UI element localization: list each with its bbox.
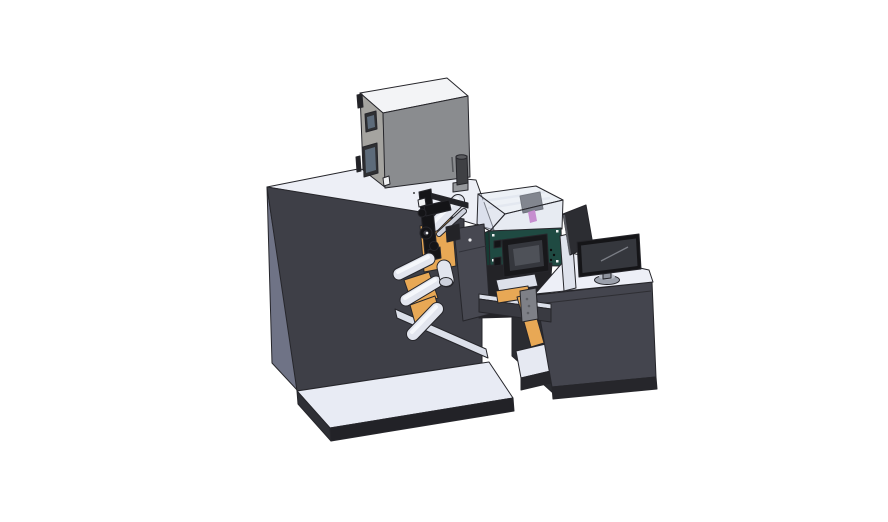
control-box-vent xyxy=(452,157,453,172)
printhead-slider xyxy=(418,198,426,207)
adjust-knob[interactable] xyxy=(418,209,426,217)
unit-button[interactable] xyxy=(550,249,552,251)
screw-dot xyxy=(413,192,415,194)
control-box-label xyxy=(383,176,390,186)
control-box-hinge-lower xyxy=(356,156,361,172)
corner-screw xyxy=(492,234,495,237)
gear-pin xyxy=(426,232,429,235)
control-box-hinge-upper xyxy=(357,94,363,108)
corner-screw xyxy=(556,230,559,233)
corner-screw xyxy=(556,260,559,263)
control-box-window-upper-glass xyxy=(367,115,375,129)
unit-button[interactable] xyxy=(550,259,552,261)
cad-viewport: Isometric 3D CAD rendering of an industr… xyxy=(0,0,888,522)
control-box xyxy=(356,78,470,188)
unit-button[interactable] xyxy=(553,254,555,256)
machine-render: Isometric 3D CAD rendering of an industr… xyxy=(0,0,888,522)
display-mount-tab xyxy=(494,257,501,266)
bracket-hole xyxy=(528,305,531,308)
printhead-block xyxy=(446,224,460,242)
facing-roller-cap xyxy=(440,278,453,287)
cylinder-body xyxy=(456,156,468,185)
control-box-window-lower-glass xyxy=(365,147,376,173)
cylinder-cap xyxy=(456,155,467,160)
bracket-hole xyxy=(526,298,529,301)
bracket-hole xyxy=(527,312,530,315)
display-mount-tab xyxy=(494,240,501,248)
plate-fitting xyxy=(468,238,471,241)
adjust-knob[interactable] xyxy=(430,242,439,251)
